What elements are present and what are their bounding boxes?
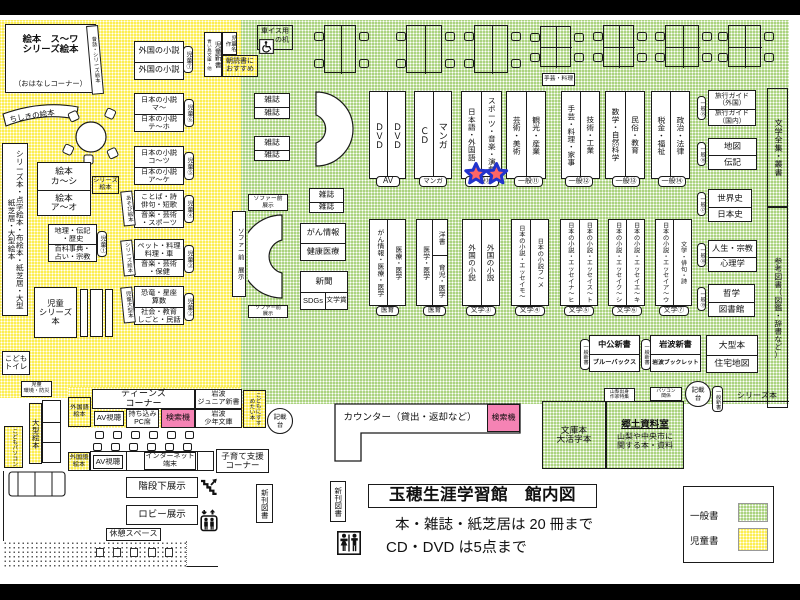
svg-text:記載: 記載 <box>274 413 288 421</box>
svg-text:台: 台 <box>695 394 702 402</box>
svg-text:記載: 記載 <box>692 386 706 394</box>
svg-text:台: 台 <box>277 421 284 429</box>
